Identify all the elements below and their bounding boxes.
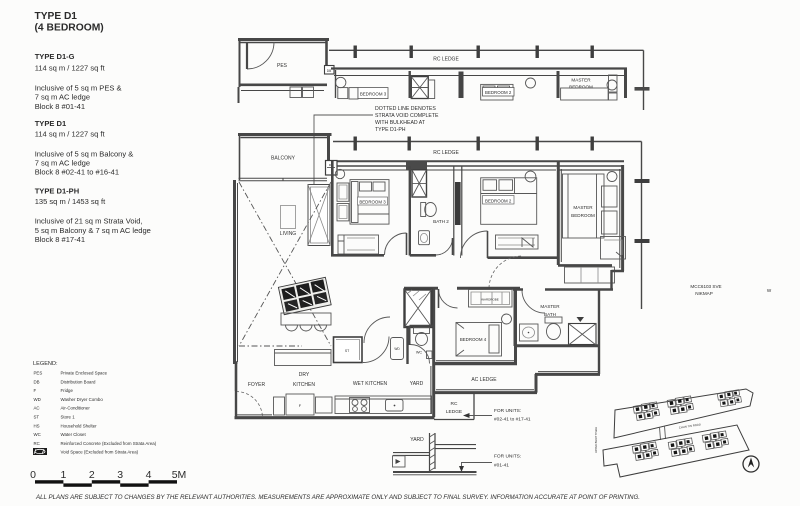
svg-text:LEDGE: LEDGE <box>446 409 462 415</box>
svg-text:7 sq m AC ledge: 7 sq m AC ledge <box>35 159 90 168</box>
svg-text:BEDROOM: BEDROOM <box>571 213 595 218</box>
svg-text:TYPE D1: TYPE D1 <box>35 119 66 128</box>
svg-text:WC: WC <box>34 432 41 437</box>
svg-text:DRY: DRY <box>299 372 310 378</box>
svg-text:RC LEDGE: RC LEDGE <box>433 150 459 156</box>
svg-text:WD: WD <box>34 397 41 402</box>
svg-text:#01-41: #01-41 <box>494 463 509 469</box>
svg-text:Void Space (Excluded from Stra: Void Space (Excluded from Strata Area) <box>61 450 139 455</box>
svg-text:WET KITCHEN: WET KITCHEN <box>353 381 388 387</box>
svg-text:5M: 5M <box>172 469 187 481</box>
svg-text:Washer Dryer Combo: Washer Dryer Combo <box>61 397 104 402</box>
svg-text:NIKMAP: NIKMAP <box>695 291 713 296</box>
svg-text:BEDROOM 3: BEDROOM 3 <box>359 200 386 205</box>
svg-text:ST: ST <box>345 349 349 353</box>
svg-text:BATH 2: BATH 2 <box>433 219 449 224</box>
svg-text:ALL PLANS ARE SUBJECT TO CHANG: ALL PLANS ARE SUBJECT TO CHANGES BY THE … <box>35 494 640 501</box>
svg-text:5 sq m Balcony & 7 sq m AC led: 5 sq m Balcony & 7 sq m AC ledge <box>35 226 151 235</box>
svg-text:PES: PES <box>34 371 43 376</box>
svg-text:HS: HS <box>34 423 40 428</box>
svg-text:BEDROOM 3: BEDROOM 3 <box>360 91 387 96</box>
svg-text:TYPE D1-PH: TYPE D1-PH <box>35 187 79 196</box>
svg-text:RC: RC <box>451 401 458 407</box>
svg-text:MCC6103 SVE: MCC6103 SVE <box>690 284 721 289</box>
svg-text:FOR UNITS:: FOR UNITS: <box>494 408 521 414</box>
svg-text:PES: PES <box>277 63 288 69</box>
svg-text:Inclusive of 21 sq m Strata Vo: Inclusive of 21 sq m Strata Void, <box>35 217 143 226</box>
svg-text:Inclusive of 5 sq m Balcony &: Inclusive of 5 sq m Balcony & <box>35 150 134 159</box>
svg-text:AC: AC <box>34 406 40 411</box>
svg-text:RC: RC <box>34 441 40 446</box>
svg-text:Water Closet: Water Closet <box>61 432 87 437</box>
svg-text:Reinforced Concrete (Excluded: Reinforced Concrete (Excluded from Strat… <box>61 441 157 446</box>
svg-text:Distribution Board: Distribution Board <box>61 379 96 384</box>
svg-text:Store 1: Store 1 <box>61 415 76 420</box>
svg-text:LIVING: LIVING <box>280 231 297 237</box>
svg-text:135 sq m / 1453 sq ft: 135 sq m / 1453 sq ft <box>35 197 106 206</box>
svg-text:BEDROOM 4: BEDROOM 4 <box>460 337 487 342</box>
svg-text:FOR UNITS:: FOR UNITS: <box>494 454 521 460</box>
svg-text:YARD: YARD <box>410 381 424 387</box>
svg-text:BEDROOM: BEDROOM <box>569 85 593 90</box>
svg-text:KITCHEN: KITCHEN <box>293 382 315 388</box>
svg-text:4: 4 <box>146 469 152 481</box>
svg-text:WARDROBE: WARDROBE <box>481 298 499 302</box>
svg-text:W: W <box>767 288 772 293</box>
svg-text:Private Enclosed Space: Private Enclosed Space <box>61 371 108 376</box>
svg-text:WITH BULKHEAD AT: WITH BULKHEAD AT <box>375 120 426 126</box>
svg-text:Block 8 #02-41 to #16-41: Block 8 #02-41 to #16-41 <box>35 168 119 177</box>
svg-text:TYPE D1: TYPE D1 <box>35 11 78 22</box>
svg-text:MASTER: MASTER <box>571 78 591 83</box>
svg-text:MASTER: MASTER <box>540 304 560 309</box>
svg-text:BATH: BATH <box>544 312 556 317</box>
svg-text:MASTER: MASTER <box>573 205 593 210</box>
svg-text:Block 8 #01-41: Block 8 #01-41 <box>35 102 85 111</box>
svg-text:BEDROOM 2: BEDROOM 2 <box>485 198 512 203</box>
svg-text:TYPE D1-G: TYPE D1-G <box>35 52 75 61</box>
svg-text:Air-Conditioner: Air-Conditioner <box>61 406 91 411</box>
svg-text:Block 8 #17-41: Block 8 #17-41 <box>35 235 85 244</box>
svg-text:TYPE D1-PH: TYPE D1-PH <box>375 127 406 133</box>
svg-text:2: 2 <box>89 469 95 481</box>
svg-text:AC LEDGE: AC LEDGE <box>471 377 497 383</box>
svg-text:YARD: YARD <box>410 437 424 443</box>
svg-text:WC: WC <box>416 351 423 355</box>
svg-text:0: 0 <box>30 469 36 481</box>
svg-text:F: F <box>34 388 37 393</box>
svg-text:BEDROOM 2: BEDROOM 2 <box>485 90 512 95</box>
svg-text:STRATA VOID COMPLETE: STRATA VOID COMPLETE <box>375 113 439 119</box>
svg-text:114 sq m / 1227 sq ft: 114 sq m / 1227 sq ft <box>35 130 106 139</box>
svg-text:DB: DB <box>34 379 40 384</box>
svg-text:BALCONY: BALCONY <box>271 156 296 162</box>
svg-text:WD: WD <box>394 347 400 351</box>
svg-text:DB: DB <box>327 69 331 73</box>
svg-text:RC LEDGE: RC LEDGE <box>433 57 459 63</box>
svg-text:1: 1 <box>60 469 66 481</box>
svg-text:UPPER BUKIT TIMAH: UPPER BUKIT TIMAH <box>594 427 598 453</box>
svg-text:#02-41 to #17-41: #02-41 to #17-41 <box>494 417 531 423</box>
svg-text:3: 3 <box>117 469 123 481</box>
svg-text:FOYER: FOYER <box>248 382 266 388</box>
svg-text:ST: ST <box>34 415 40 420</box>
svg-text:7 sq m AC ledge: 7 sq m AC ledge <box>35 93 90 102</box>
svg-text:DOTTED LINE DENOTES: DOTTED LINE DENOTES <box>375 106 436 112</box>
svg-text:Inclusive of 5 sq m PES &: Inclusive of 5 sq m PES & <box>35 84 122 93</box>
svg-text:(4 BEDROOM): (4 BEDROOM) <box>35 23 104 34</box>
svg-text:Household Shelter: Household Shelter <box>61 423 98 428</box>
svg-text:LEGEND:: LEGEND: <box>33 361 58 367</box>
svg-text:114 sq m / 1227 sq ft: 114 sq m / 1227 sq ft <box>35 64 106 73</box>
svg-text:Fridge: Fridge <box>61 388 74 393</box>
